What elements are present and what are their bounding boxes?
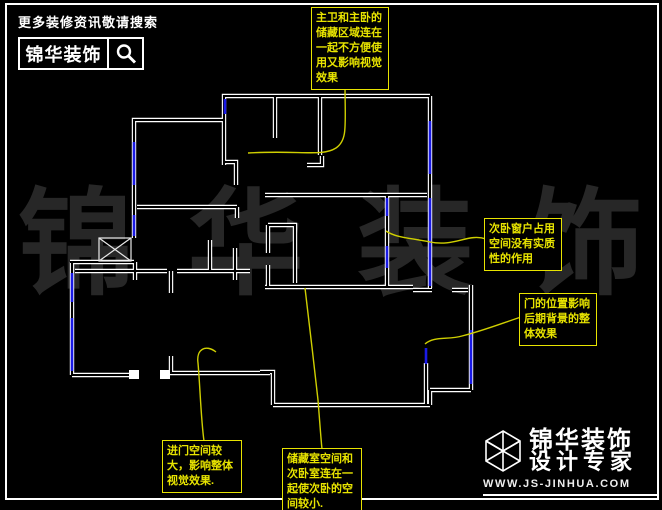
- annotation-secondary-bedroom-window: 次卧窗户占用 空间没有实质 性的作用: [484, 218, 562, 271]
- annotation-master-bath-storage: 主卫和主卧的 储藏区域连在 一起不方便使 用又影响视觉 效果: [311, 7, 389, 90]
- footer-underline: [483, 494, 659, 496]
- annotation-entry-space: 进门空间较 大，影响整体 视觉效果.: [162, 440, 242, 493]
- brand-search-box[interactable]: 锦华装饰: [18, 37, 144, 70]
- annotation-storage-room: 储藏室空间和 次卧室连在一 起使次卧的空 间较小.: [282, 448, 362, 510]
- footer-website: WWW.JS-JINHUA.COM: [483, 478, 660, 490]
- brand-name: 锦华装饰: [20, 39, 107, 68]
- walls: [70, 96, 471, 405]
- header-tagline: 更多装修资讯敬请搜索: [18, 12, 158, 31]
- header-brand: 更多装修资讯敬请搜索 锦华装饰: [18, 12, 158, 70]
- walls: [70, 96, 471, 405]
- column-pillars: [129, 370, 170, 379]
- page: 锦 华 装 饰: [0, 0, 662, 510]
- elevator-shaft-icon: [99, 238, 131, 261]
- search-icon[interactable]: [109, 39, 142, 68]
- footer-subtitle: 设计专家: [529, 452, 637, 472]
- annotation-door-position: 门的位置影响 后期背景的整 体效果: [519, 293, 597, 346]
- cube-logo-icon: [483, 429, 523, 473]
- leader-lines: [198, 83, 521, 449]
- footer-brand: 锦华装饰 设计专家 WWW.JS-JINHUA.COM: [483, 429, 660, 496]
